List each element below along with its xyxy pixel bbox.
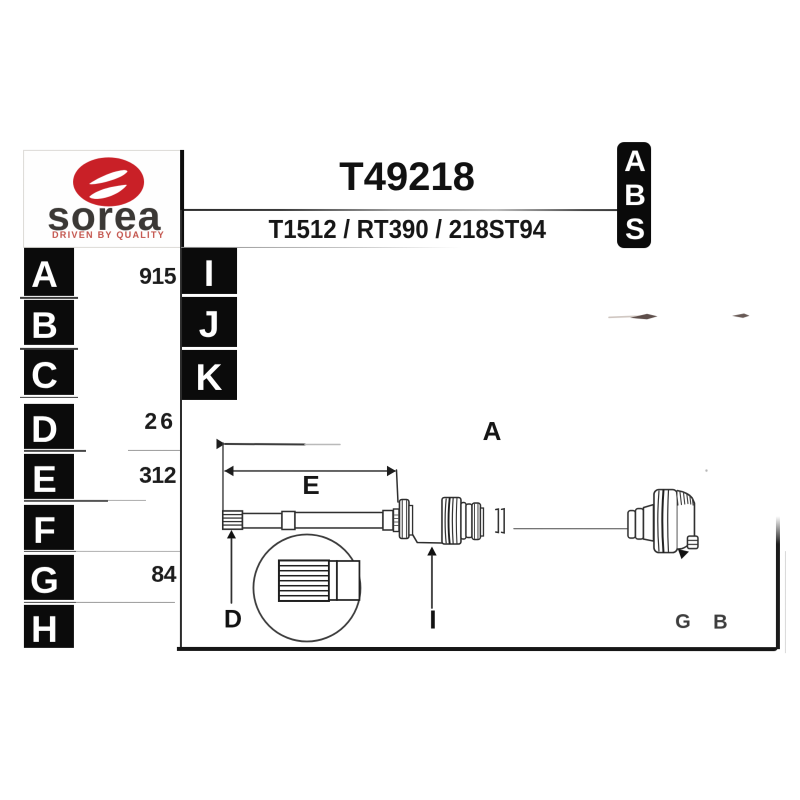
svg-text:B: B [713,612,727,634]
svg-text:E: E [302,470,319,500]
svg-text:D: D [224,605,242,633]
svg-text:A: A [483,416,502,446]
svg-text:I: I [429,605,436,635]
svg-text:G: G [675,611,691,633]
